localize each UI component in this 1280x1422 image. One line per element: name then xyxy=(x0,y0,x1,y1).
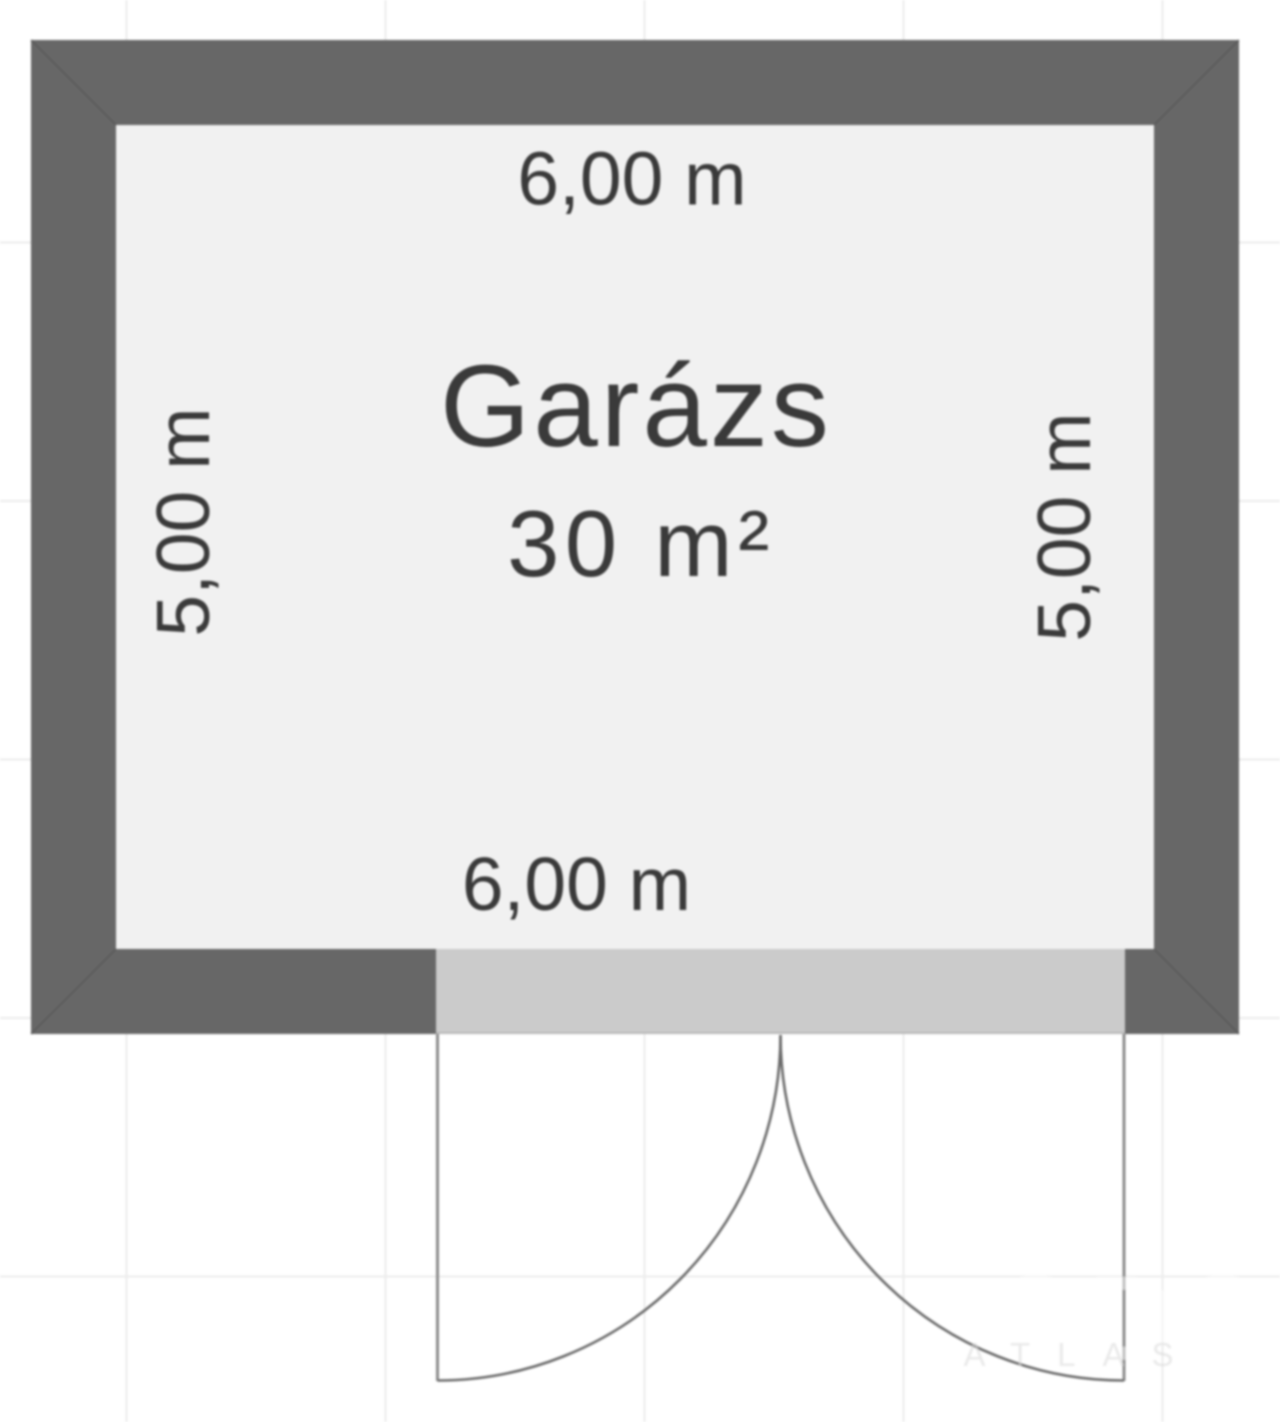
svg-text:6,00 m: 6,00 m xyxy=(517,137,746,221)
svg-text:5,00 m: 5,00 m xyxy=(141,407,225,636)
svg-text:Garázs: Garázs xyxy=(440,341,832,471)
svg-text:ATLAS: ATLAS xyxy=(963,1336,1200,1373)
svg-text:30 m²: 30 m² xyxy=(507,491,775,596)
svg-text:6,00 m: 6,00 m xyxy=(462,842,691,926)
svg-text:5,00 m: 5,00 m xyxy=(1022,412,1106,641)
